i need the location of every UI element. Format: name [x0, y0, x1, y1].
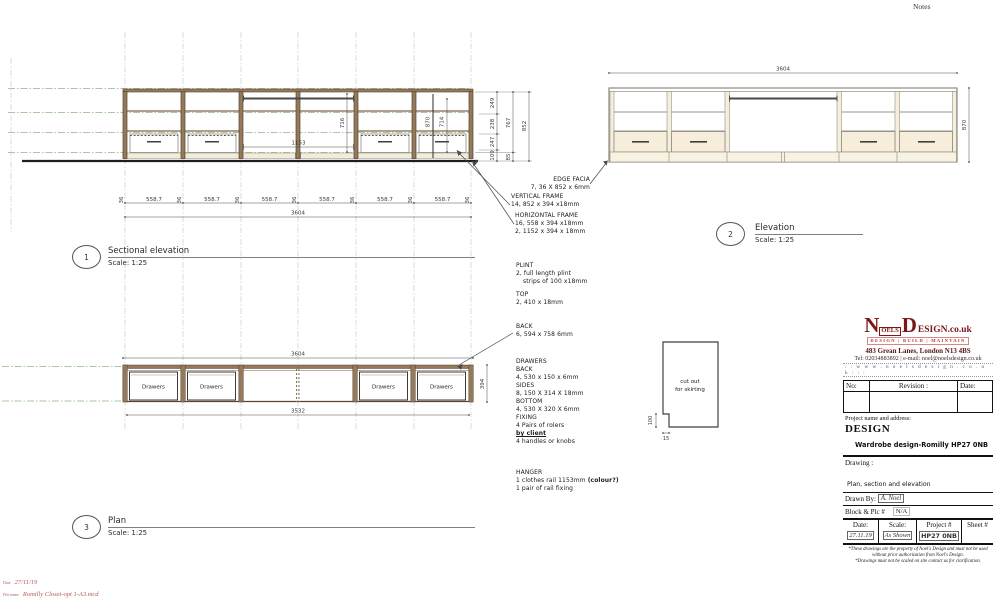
view-bubble-2: 2 [716, 222, 745, 246]
svg-text:558.7: 558.7 [377, 197, 393, 203]
section-bottom-dims: 36 558.7 36 558.7 36 558.7 36 558.7 36 5… [119, 196, 472, 218]
annotation-horizontal-frame: HORIZONTAL FRAME16, 558 x 394 x18mm2, 11… [515, 212, 585, 236]
company-website: : : w w w . n o e l s d e s i g n . c o … [843, 363, 993, 377]
dim-852: 852 [522, 121, 528, 132]
dim-716: 716 [340, 117, 346, 128]
dim-238: 238 [490, 118, 496, 129]
company-contact: Tel: 02034883892 | e-mail: noel@noelsdes… [843, 356, 993, 362]
plan-drawer-label-3: Drawers [372, 385, 395, 391]
drawn-by-value: A. Noel [878, 494, 904, 503]
dim-109: 109 [490, 150, 496, 161]
project-number-value: HP27 0NB [919, 531, 959, 541]
skirting-cutout-detail: cut out for skirting 100 15 [648, 342, 718, 442]
annotation-plint: PLINT2, full length plintstrips of 100 x… [516, 262, 587, 286]
plan-dim-394: 394 [480, 378, 486, 389]
date-value: 27.11.19 [847, 531, 874, 540]
scale-value: As Shown [883, 531, 913, 540]
cutout-label-2: for skirting [675, 387, 705, 393]
drawing-section: Drawing : Plan, section and elevation [843, 457, 993, 493]
elevation-view: 3604 [608, 67, 970, 163]
svg-text:558.7: 558.7 [146, 197, 162, 203]
dim-714: 714 [440, 116, 446, 127]
svg-text:36: 36 [408, 196, 414, 203]
annotation-edge-facia: EDGE FACIA7, 36 X 852 x 6mm [470, 176, 590, 192]
dim-249: 249 [490, 97, 496, 108]
dim-247: 247 [490, 136, 496, 147]
plan-dim-3532: 3532 [291, 409, 305, 415]
plan-drawer-label-1: Drawers [142, 385, 165, 391]
view-title-plan: Plan Scale: 1:25 [108, 516, 475, 537]
svg-text:36: 36 [177, 196, 183, 203]
annotation-top: TOP2, 410 x 18mm [516, 291, 563, 307]
block-plc-value: N/A [893, 507, 910, 516]
annotation-hanger: HANGER 1 clothes rail 1153mm (colour?) 1… [516, 469, 619, 493]
svg-text:36: 36 [465, 196, 471, 203]
cutout-dim-15: 15 [663, 436, 669, 442]
svg-text:36: 36 [235, 196, 241, 203]
svg-text:36: 36 [119, 196, 125, 203]
annotation-back: BACK6, 594 x 758 6mm [516, 323, 573, 339]
notes-heading: Notes [913, 2, 931, 11]
elev-dim-3604: 3604 [776, 67, 790, 73]
dim-767: 767 [506, 117, 512, 128]
svg-text:558.7: 558.7 [319, 197, 335, 203]
company-name: DESIGN [845, 423, 991, 435]
view-bubble-1: 1 [72, 245, 101, 269]
file-stamp: Date 27/11/19 File name Romilly Closet-o… [3, 575, 99, 599]
cutout-label-1: cut out [680, 379, 700, 385]
svg-text:558.7: 558.7 [262, 197, 278, 203]
svg-text:558.7: 558.7 [204, 197, 220, 203]
dim-total-3604: 3604 [291, 211, 305, 217]
svg-text:36: 36 [292, 196, 298, 203]
logo-tagline: DESIGN | BUILD | MAINTAIN [867, 337, 968, 345]
plan-view: 3604 Drawers Drawers [122, 352, 488, 416]
plan-drawer-label-4: Drawers [430, 385, 453, 391]
plan-dim-3604: 3604 [291, 352, 305, 358]
project-section: Project name and address: DESIGN Wardrob… [843, 413, 993, 457]
view-title-sectional: Sectional elevation Scale: 1:25 [108, 246, 475, 267]
annotation-drawers: DRAWERSBACK 4, 530 x 150 x 6mmSIDES 8, 1… [516, 358, 584, 446]
project-name: Wardrobe design-Romilly HP27 0NB [855, 441, 991, 449]
view-bubble-3: 3 [72, 515, 101, 539]
view-title-elevation: Elevation Scale: 1:25 [755, 223, 863, 244]
annotation-vertical-frame: VERTICAL FRAME14, 852 x 394 x18mm [511, 193, 579, 209]
drawn-by-row: Drawn By: A. Noel [843, 493, 993, 506]
cutout-dim-100: 100 [648, 416, 654, 426]
company-address: 483 Grean Lanes, London N13 4BS [843, 347, 993, 355]
dim-85: 85 [506, 153, 512, 160]
block-plc-row: Block & Plc # N/A [843, 506, 993, 520]
disclaimer: *These drawings are the property of Noel… [843, 547, 993, 565]
dim-870: 870 [426, 116, 432, 127]
svg-text:36: 36 [350, 196, 356, 203]
title-block: NOELSDESIGN.co.uk DESIGN | BUILD | MAINT… [843, 315, 993, 565]
svg-text:558.7: 558.7 [435, 197, 451, 203]
sectional-elevation-view: 1153 716 870 714 249 238 247 [22, 89, 532, 218]
info-table: Date: 27.11.19 Scale: As Shown Project #… [843, 520, 993, 545]
dim-1153: 1153 [292, 141, 306, 147]
drawing-sheet: 1153 716 870 714 249 238 247 [0, 0, 1000, 600]
elev-dim-870: 870 [962, 119, 968, 130]
plan-drawer-label-2: Drawers [200, 385, 223, 391]
drawing-title: Plan, section and elevation [847, 481, 991, 488]
company-logo: NOELSDESIGN.co.uk [843, 315, 993, 337]
revision-table: No: Revision : Date: [843, 380, 993, 413]
